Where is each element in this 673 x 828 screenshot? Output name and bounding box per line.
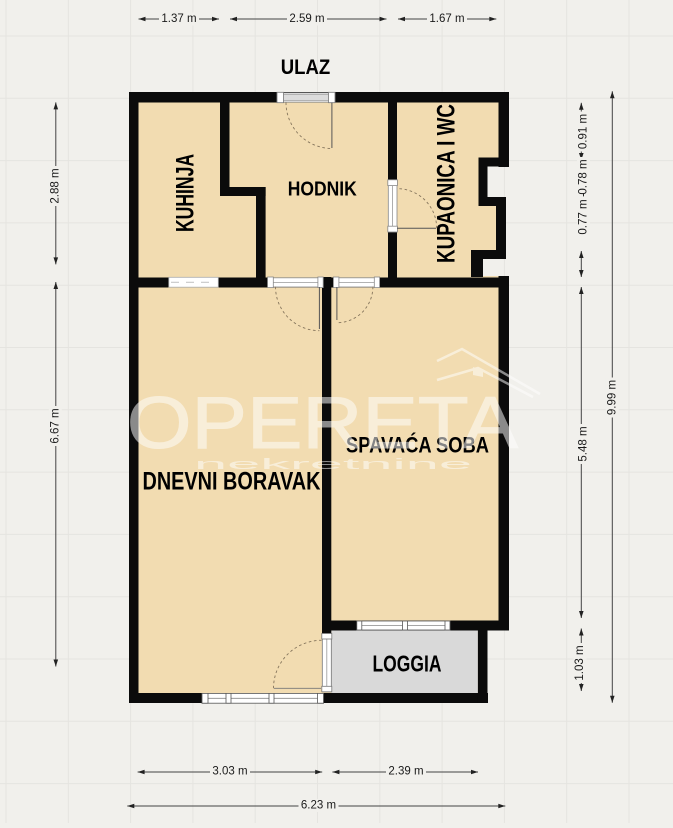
svg-text:5.48 m: 5.48 m xyxy=(578,426,590,461)
svg-text:-: - xyxy=(578,193,590,197)
svg-text:9.99 m: 9.99 m xyxy=(606,380,618,415)
svg-text:2.39 m: 2.39 m xyxy=(388,766,423,778)
svg-text:LOGGIA: LOGGIA xyxy=(373,651,442,677)
svg-text:1.37 m: 1.37 m xyxy=(161,13,196,25)
svg-text:2.59 m: 2.59 m xyxy=(289,13,324,25)
svg-text:ULAZ: ULAZ xyxy=(281,56,331,79)
svg-text:0.77 m: 0.77 m xyxy=(578,199,590,234)
svg-text:0.91 m: 0.91 m xyxy=(578,114,590,149)
svg-text:2.88 m: 2.88 m xyxy=(49,168,61,203)
svg-text:HODNIK: HODNIK xyxy=(288,178,357,200)
svg-text:OPERETA: OPERETA xyxy=(127,383,518,464)
svg-text:nekretnine: nekretnine xyxy=(194,456,472,473)
svg-text:0.78 m: 0.78 m xyxy=(578,159,590,194)
svg-text:6.23 m: 6.23 m xyxy=(301,800,336,812)
svg-text:KUHINJA: KUHINJA xyxy=(172,154,200,232)
svg-text:1.67 m: 1.67 m xyxy=(429,13,464,25)
svg-text:6.67 m: 6.67 m xyxy=(49,408,61,443)
svg-text:3.03 m: 3.03 m xyxy=(212,766,247,778)
svg-text:1.03 m: 1.03 m xyxy=(574,645,586,680)
svg-text:KUPAONICA I WC: KUPAONICA I WC xyxy=(433,104,461,263)
